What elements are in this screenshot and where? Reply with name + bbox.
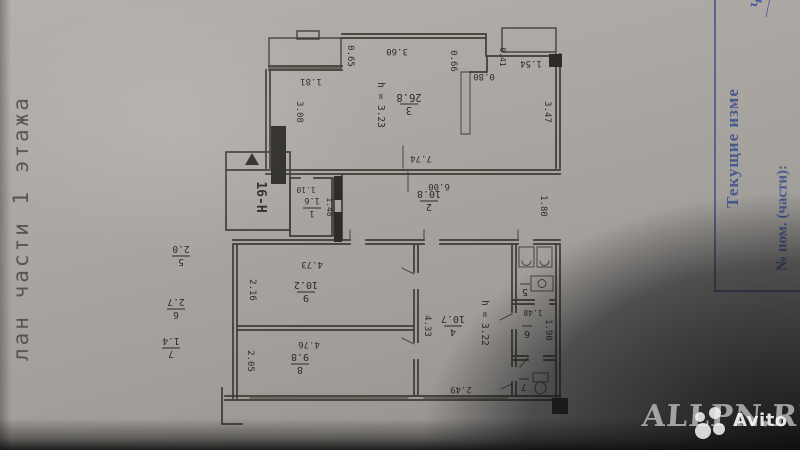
dim-0-80: 0.80	[473, 71, 495, 81]
unit-label: 16-Н	[253, 181, 268, 212]
dim-1-48: 1.48	[325, 197, 334, 216]
vent-shaft-block	[549, 54, 562, 67]
walls	[222, 28, 560, 424]
dim-2-16: 2.16	[247, 279, 257, 301]
room-4-label-area: 10.7	[441, 313, 465, 324]
dim-1-48-hall: 1.48	[523, 308, 542, 317]
dim-0-41: 0.41	[498, 47, 507, 66]
wall-block	[334, 176, 342, 200]
room-7-number-number: 7	[521, 381, 527, 392]
room-3-height-label: h = 3.23	[375, 82, 386, 128]
room-3-label-number: 3	[406, 104, 412, 116]
room-4-label-number: 4	[450, 326, 456, 337]
room-6-area-note-number: 6	[173, 309, 179, 320]
stove-burner-icon	[538, 280, 546, 288]
floorplan-photo: 3.600.651.813.080.660.800.411.543.477.74…	[0, 0, 800, 450]
room-6-area-note-area: 2.7	[167, 296, 184, 307]
toilet-tank-icon	[533, 373, 548, 382]
outer-inner-walls	[222, 34, 560, 424]
room-1-label: 11.6	[303, 195, 321, 218]
room-9-label-number: 9	[303, 292, 309, 303]
dim-1-54: 1.54	[520, 58, 542, 68]
sink-bowl-icon	[522, 261, 531, 266]
stamp-header: Текущие изме	[723, 88, 743, 208]
sheet-caption: лан части 1 этажа	[9, 95, 33, 361]
room-5-area-note: 52.0	[172, 243, 190, 267]
room-7-number: 7	[519, 379, 529, 392]
entrance-arrow-icon	[245, 153, 259, 165]
room-7-area-note-number: 7	[168, 348, 174, 359]
room-5-number-number: 5	[522, 286, 528, 297]
dim-1-90: 1.90	[543, 319, 553, 341]
room-2-label-number: 2	[426, 201, 432, 212]
room-5-area-note-number: 5	[178, 256, 184, 267]
toilet-bowl-icon	[535, 382, 546, 394]
dim-7-74: 7.74	[410, 153, 432, 163]
dim-1-10: 1.10	[296, 185, 315, 194]
room-5-number: 5	[520, 284, 530, 297]
stove-icon	[531, 276, 553, 291]
floorplan-drawing: 3.600.651.813.080.660.800.411.543.477.74…	[0, 0, 800, 450]
room-8-label-number: 8	[297, 364, 303, 375]
room-8-label-area: 9.8	[291, 351, 309, 362]
room-2-label-area: 10.8	[417, 188, 441, 199]
dim-0-65: 0.65	[345, 45, 355, 67]
room-4-label: 410.7	[441, 313, 465, 337]
sink-icon	[519, 247, 534, 267]
dim-2-05: 2.05	[245, 350, 255, 372]
core-wall-block	[271, 126, 286, 184]
dim-0-66: 0.66	[448, 50, 458, 72]
stamp-table-border-horizontal	[714, 290, 800, 292]
room-9-label: 910.2	[294, 279, 318, 303]
wall-block	[334, 212, 342, 242]
room-6-number: 6	[522, 326, 532, 339]
sink2-icon	[537, 247, 552, 267]
room-7-area-note: 71.4	[162, 335, 180, 359]
dim-1-81: 1.81	[300, 76, 322, 86]
room-8-label: 89.8	[291, 351, 309, 375]
dim-1-80: 1.80	[538, 195, 548, 217]
room-3-label: 326.8	[396, 91, 421, 116]
room-4-height-label: h = 3.22	[479, 300, 490, 346]
room-3-label-area: 26.8	[396, 91, 421, 103]
room-9-label-area: 10.2	[294, 279, 318, 290]
plan-details	[250, 72, 528, 398]
dim-3-60: 3.60	[386, 46, 408, 56]
room-2-label: 210.8	[417, 188, 441, 212]
balcony-top-right	[502, 28, 556, 52]
corner-wall-block	[552, 398, 568, 414]
room-6-number-number: 6	[524, 328, 530, 339]
sink2-bowl-icon	[540, 261, 549, 266]
plan-labels: 3.600.651.813.080.660.800.411.543.477.74…	[162, 45, 553, 394]
balcony-top-left	[269, 38, 341, 68]
dim-3-47: 3.47	[542, 101, 552, 123]
dim-2-49: 2.49	[450, 384, 472, 394]
dim-4-76: 4.76	[298, 339, 320, 349]
dim-3-08: 3.08	[294, 101, 304, 123]
stamp-table-border-vertical	[714, 0, 716, 292]
dim-4-33: 4.33	[422, 315, 432, 337]
room-1-label-area: 1.6	[304, 195, 319, 205]
room-6-area-note: 62.7	[167, 296, 185, 320]
room-5-area-note-area: 2.0	[172, 243, 189, 254]
room-7-area-note-area: 1.4	[162, 335, 179, 346]
dim-4-73: 4.73	[301, 259, 323, 269]
room-1-label-number: 1	[309, 208, 314, 218]
stamp-row-label: № пом. (части):	[775, 165, 792, 271]
